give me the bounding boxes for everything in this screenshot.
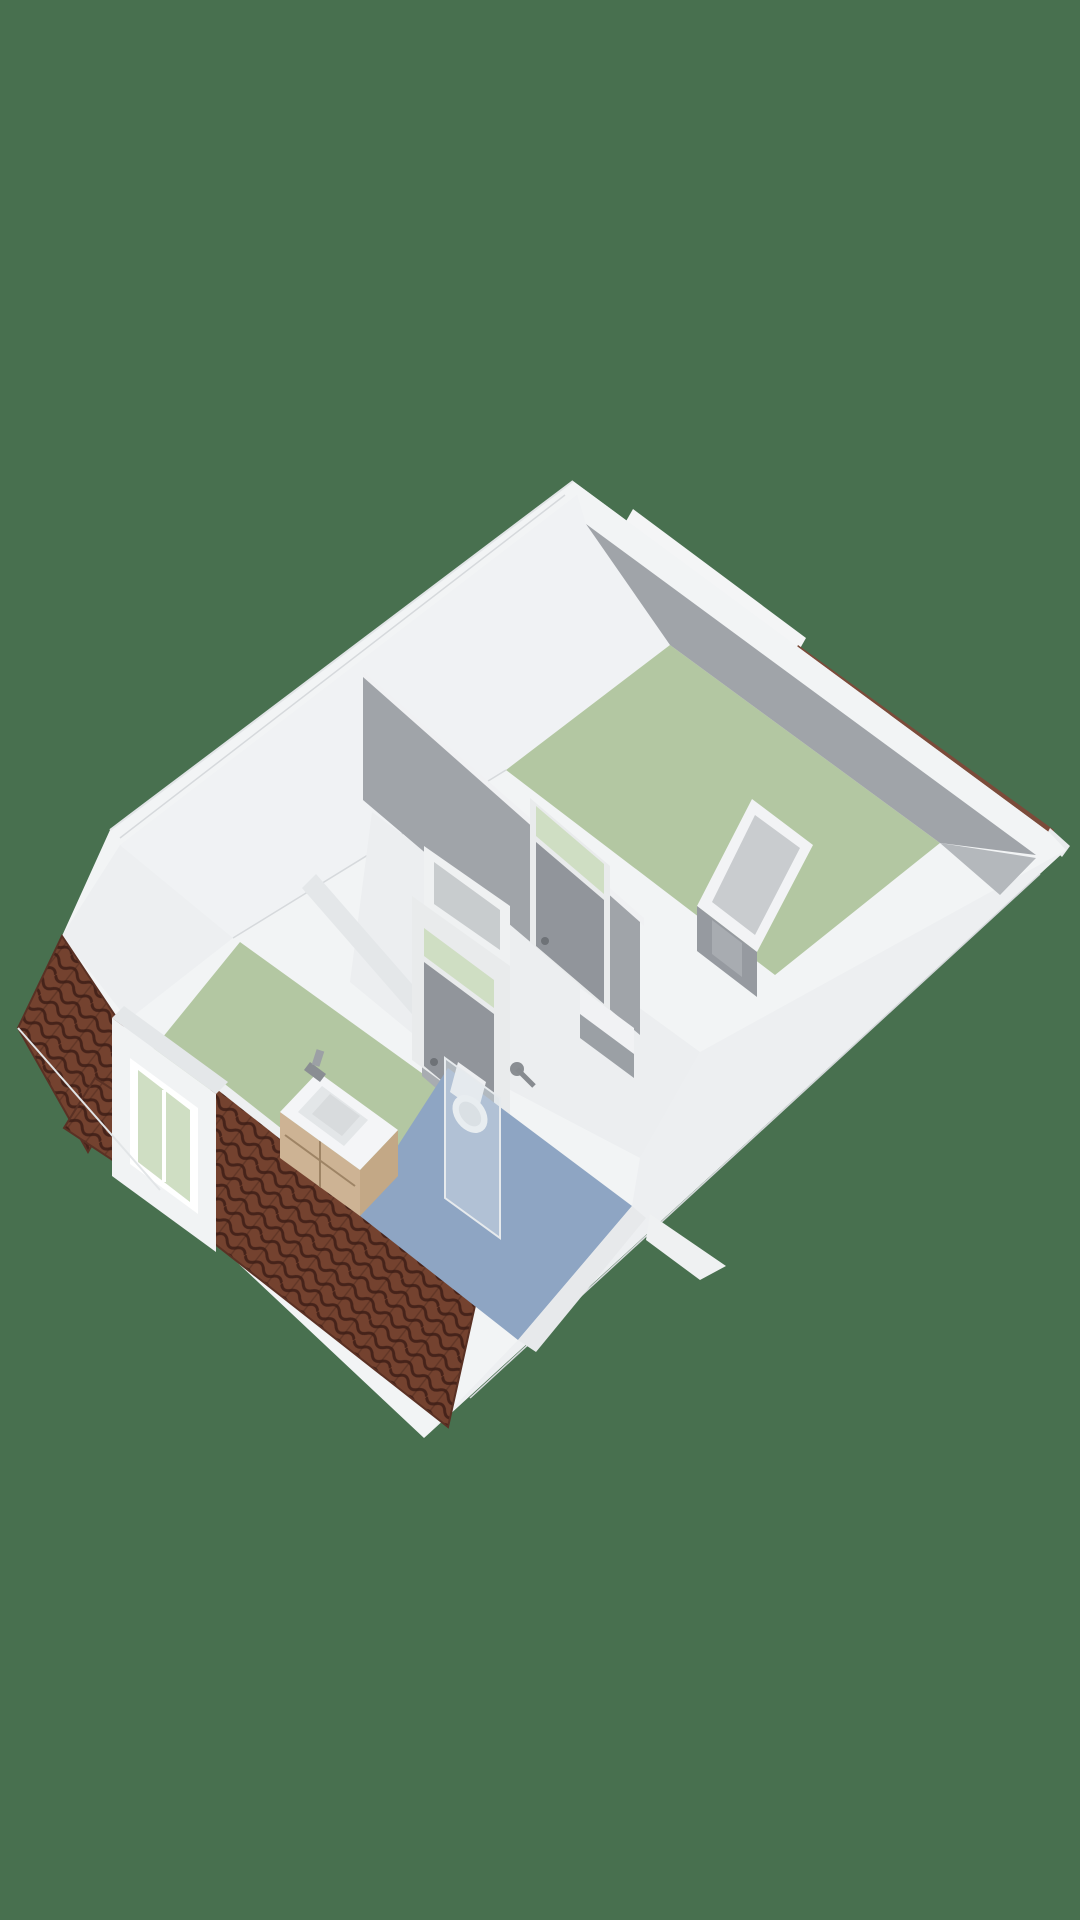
door-handle-bathroom[interactable] [430, 1058, 438, 1066]
door-handle-bedroom-rear[interactable] [541, 937, 549, 945]
floorplan-3d-render [0, 0, 1080, 1920]
floorplan-3d-viewport[interactable] [0, 0, 1080, 1920]
